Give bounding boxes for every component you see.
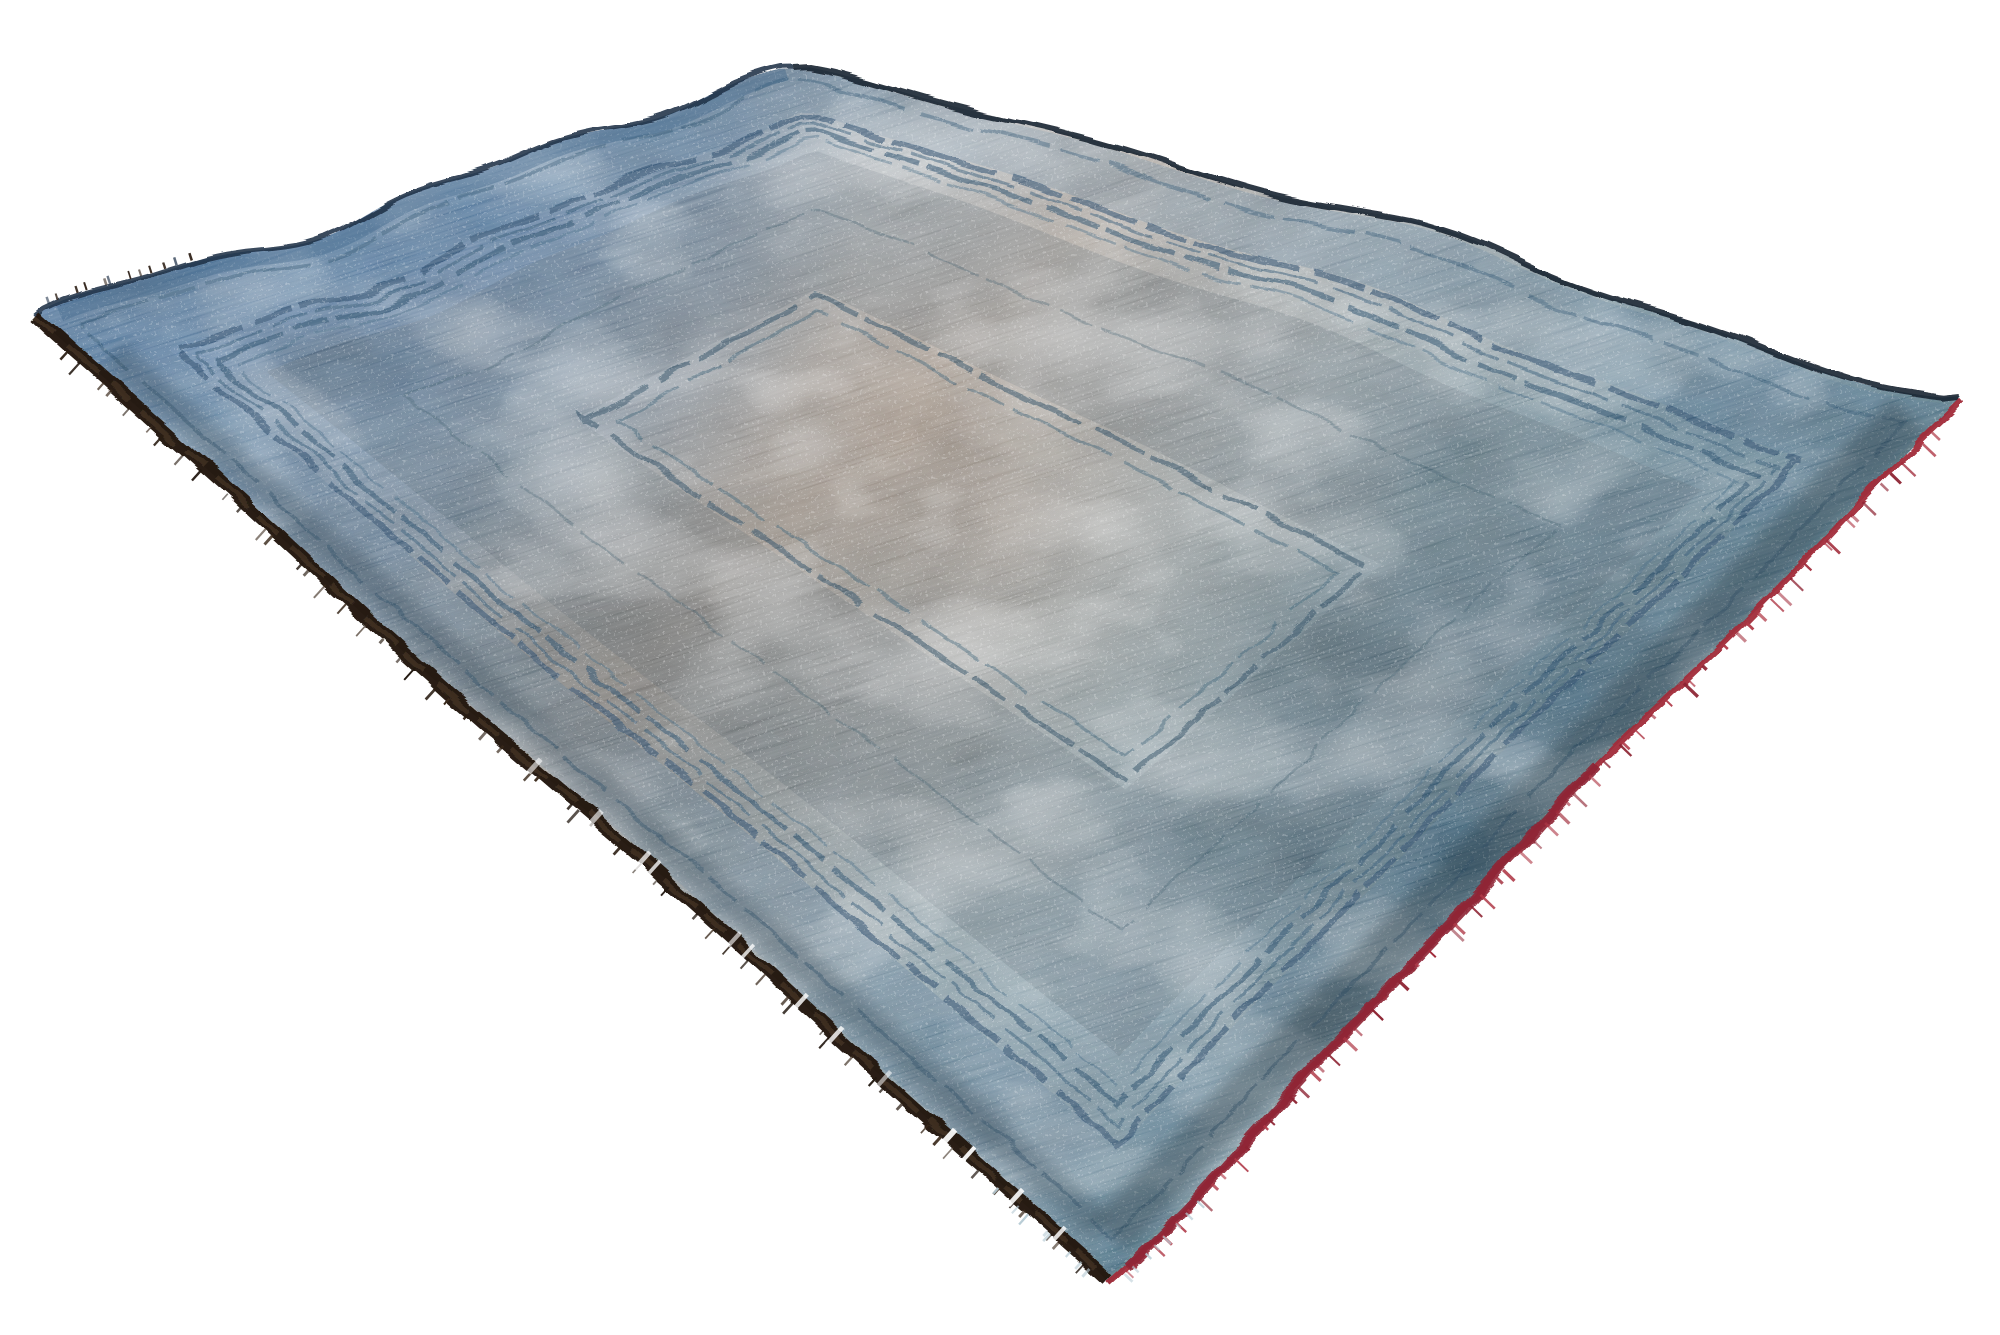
rug-photo [0,0,2000,1335]
product-photo-stage [0,0,2000,1335]
